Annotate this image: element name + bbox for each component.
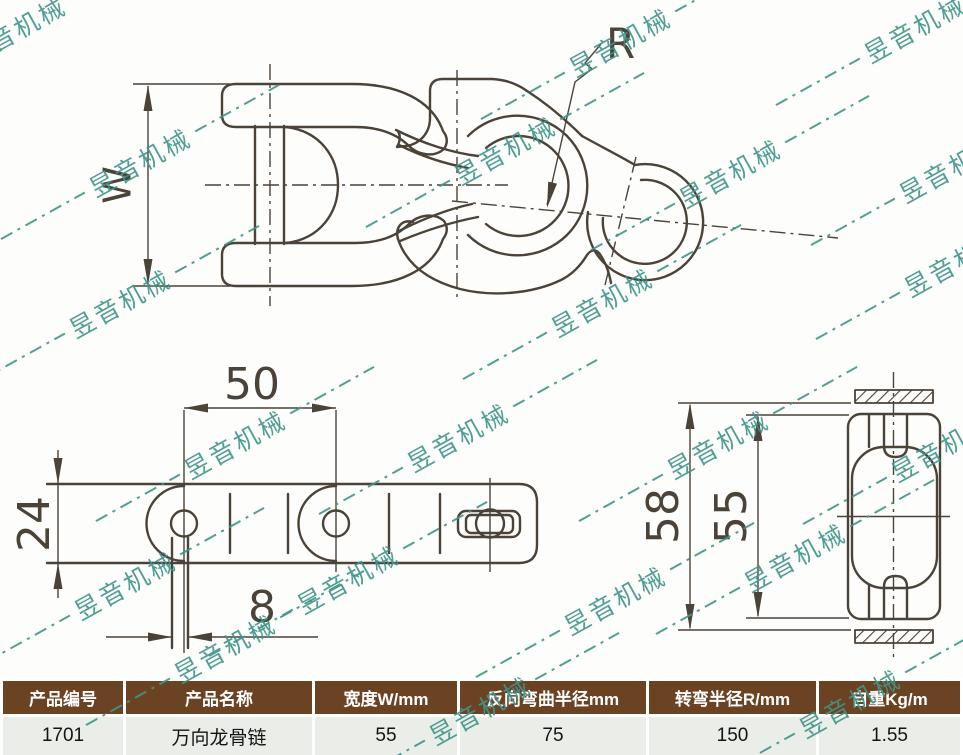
spec-table-header-cell: 自重Kg/m <box>819 681 960 714</box>
spec-table-header-cell: 宽度W/mm <box>315 681 457 714</box>
dim-label-w: W <box>96 166 140 204</box>
spec-table-cell: 万向龙骨链 <box>126 717 312 755</box>
dim-label-body-55: 55 <box>706 488 757 544</box>
dim-label-r: R <box>606 19 635 68</box>
arrowheads <box>54 85 763 642</box>
spec-table-cell: 1.55 <box>819 717 960 755</box>
top-view-chain-links <box>222 79 703 293</box>
dim-label-pin-8: 8 <box>248 582 276 633</box>
spec-table-header-cell: 产品名称 <box>126 681 312 714</box>
technical-drawing-canvas: W R 50 24 8 58 55 <box>0 0 963 678</box>
spec-table-cell: 150 <box>649 717 816 755</box>
catalog-page: { "watermark": { "text": "昱音机械", "color"… <box>0 0 963 755</box>
spec-table-header-cell: 产品编号 <box>3 681 123 714</box>
dim-label-height-24: 24 <box>9 496 60 552</box>
spec-table-cell: 1701 <box>3 717 123 755</box>
spec-table-header-cell: 反向弯曲半径mm <box>460 681 646 714</box>
drawing-sheet: W R 50 24 8 58 55 产品编号 产品名称 宽度W/mm 反向弯曲半… <box>0 0 963 755</box>
spec-table-header-cell: 转弯半径R/mm <box>649 681 816 714</box>
side-view-chain <box>47 484 537 648</box>
spec-table-cell: 75 <box>460 717 646 755</box>
spec-table: 产品编号 产品名称 宽度W/mm 反向弯曲半径mm 转弯半径R/mm 自重Kg/… <box>0 678 963 755</box>
dim-label-pitch-50: 50 <box>224 359 280 410</box>
dimension-lines <box>58 44 950 660</box>
dim-label-rail-58: 58 <box>638 488 689 544</box>
spec-table-cell: 55 <box>315 717 457 755</box>
